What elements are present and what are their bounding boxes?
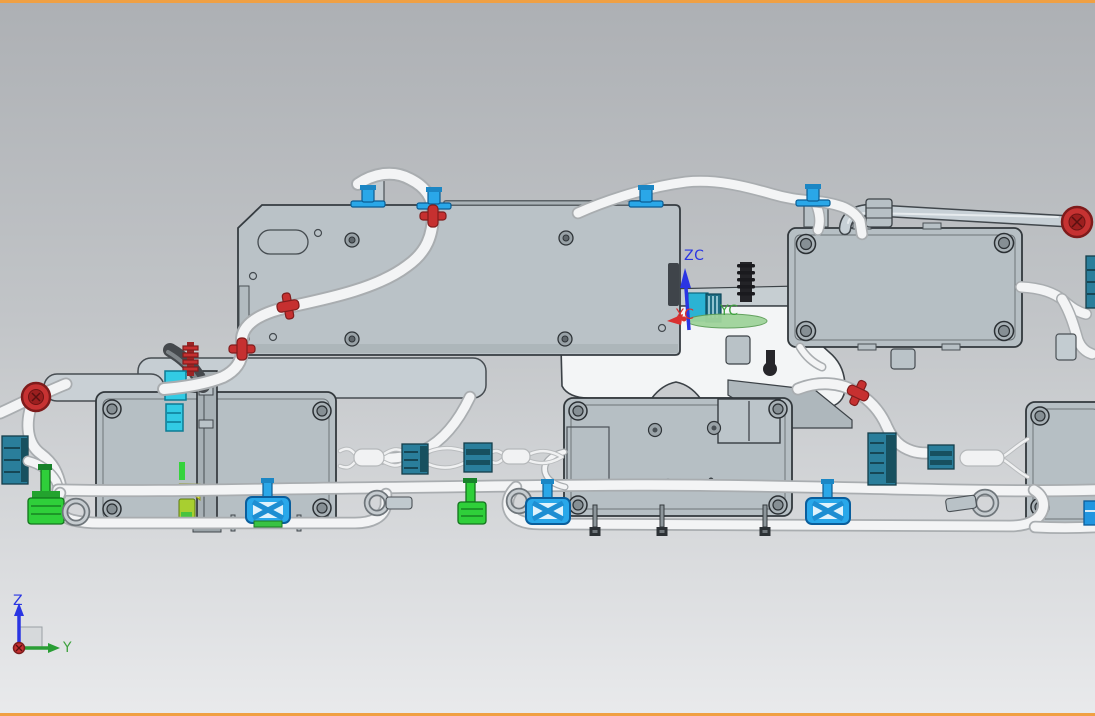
view-triad: [14, 603, 61, 654]
mounting-rail[interactable]: [193, 371, 221, 532]
enclosure-top-right[interactable]: [788, 223, 1022, 369]
model-canvas[interactable]: [0, 0, 1095, 716]
panel-top-left[interactable]: [238, 180, 680, 355]
tubes-right-edge[interactable]: [1021, 256, 1095, 360]
sleeve-2[interactable]: [945, 495, 977, 512]
wcs-xc-label: XC: [675, 308, 694, 322]
blue-connector-right[interactable]: [1084, 501, 1095, 525]
connector-chain-left[interactable]: [340, 443, 562, 474]
harness-tube-main[interactable]: [58, 485, 1095, 491]
cad-viewport[interactable]: ZC YC XC Z Y: [0, 0, 1095, 716]
connector-chain-right[interactable]: [868, 433, 1028, 485]
conduit-top-right[interactable]: [845, 199, 1062, 229]
rubber-grommet-right[interactable]: [1062, 207, 1092, 237]
wcs-zc-label: ZC: [684, 249, 704, 263]
view-z-label: Z: [13, 594, 23, 608]
rubber-grommet-left[interactable]: [22, 383, 50, 411]
enclosure-center[interactable]: [564, 398, 792, 516]
sleeve-1[interactable]: [386, 497, 412, 509]
view-y-label: Y: [63, 641, 72, 655]
ring-clamp-1[interactable]: [367, 493, 387, 513]
wcs-yc-label: YC: [720, 304, 739, 318]
